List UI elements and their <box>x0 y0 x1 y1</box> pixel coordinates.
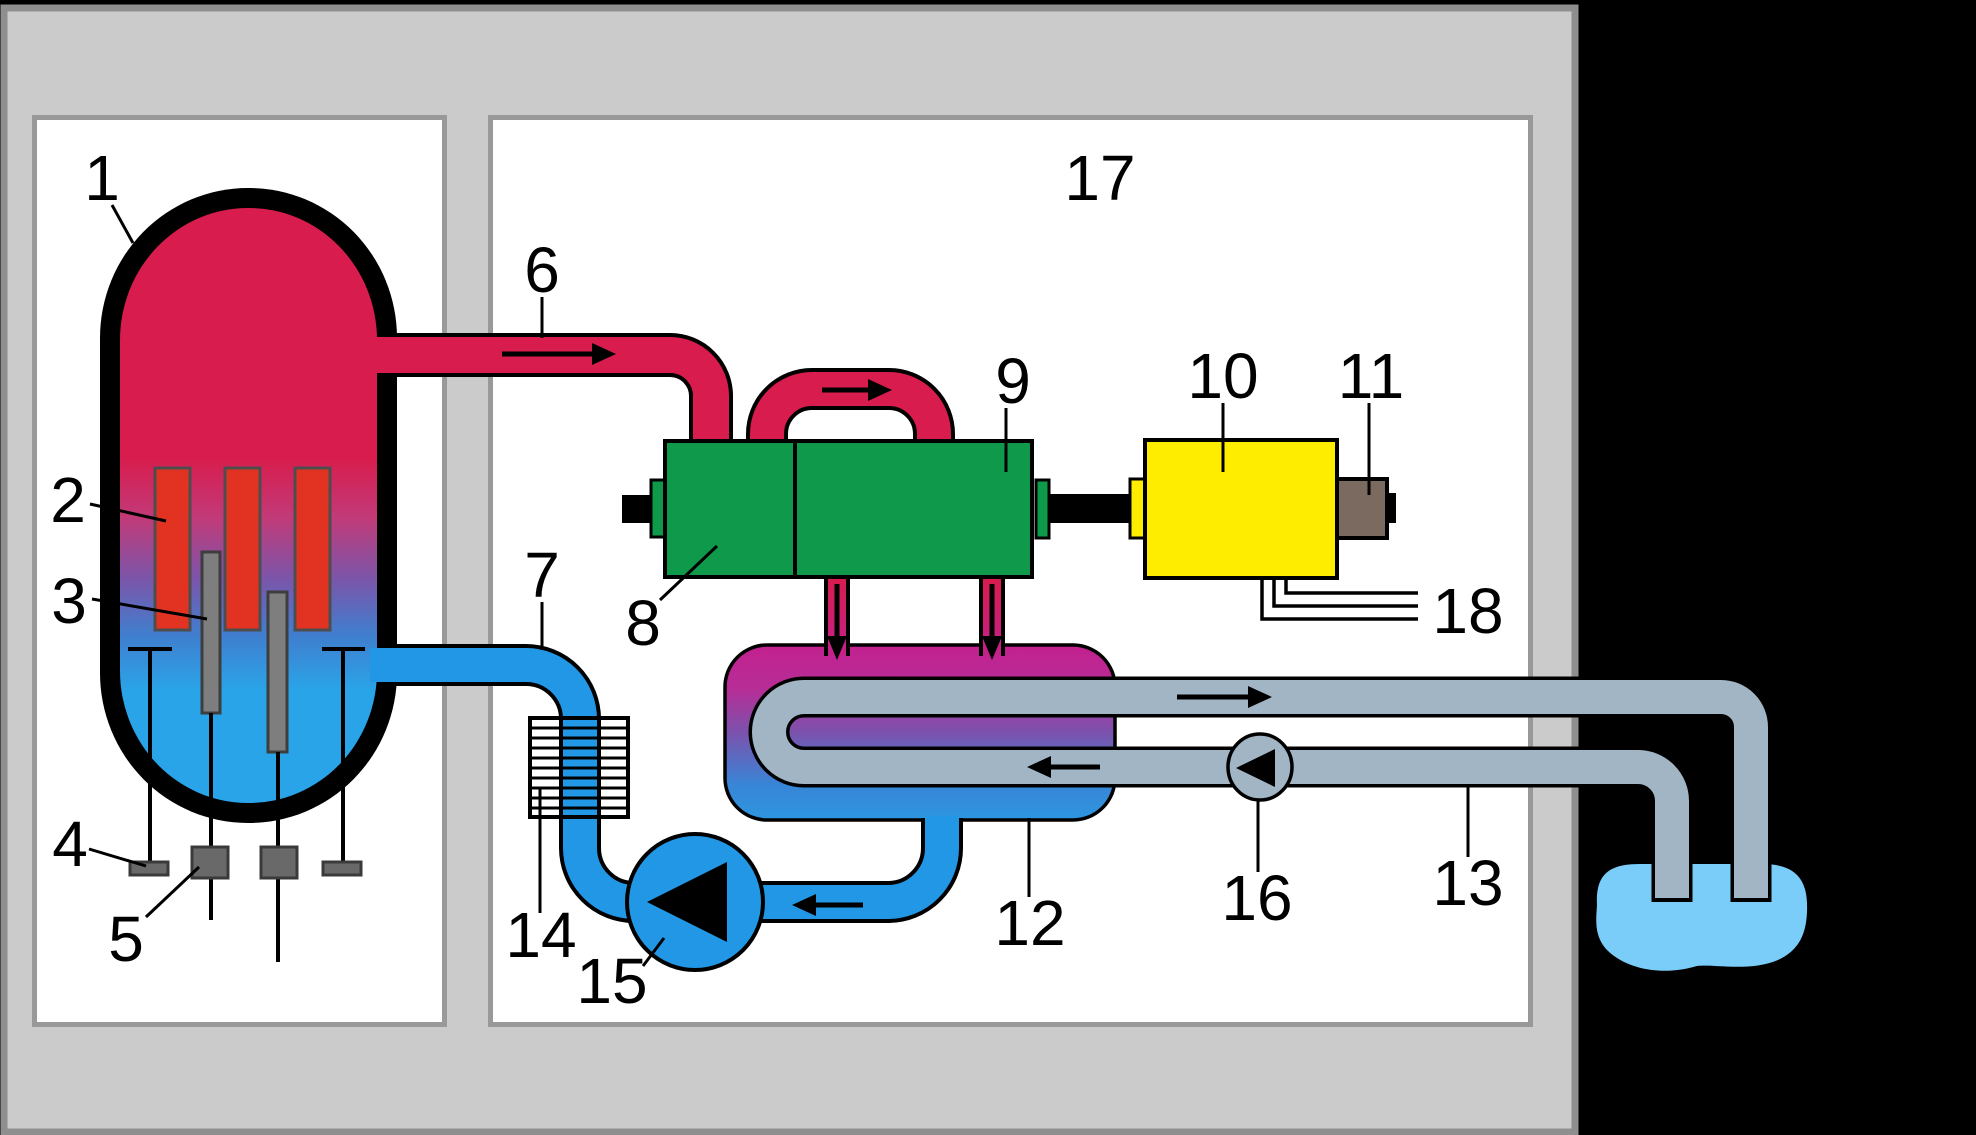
generator <box>1145 440 1337 578</box>
diagram-canvas: 1 2 3 4 5 6 7 8 9 10 11 12 13 14 15 16 1… <box>0 0 1976 1135</box>
label-10: 10 <box>1187 340 1258 412</box>
reactor-schematic: 1 2 3 4 5 6 7 8 9 10 11 12 13 14 15 16 1… <box>0 0 1976 1135</box>
label-16: 16 <box>1221 862 1292 934</box>
turbine-generator-set <box>622 440 1396 578</box>
label-9: 9 <box>995 345 1031 417</box>
label-6: 6 <box>524 234 560 306</box>
turbine-generator-shaft <box>1049 494 1130 523</box>
label-7: 7 <box>524 539 560 611</box>
shaft-stub-right <box>1387 493 1396 523</box>
label-11: 11 <box>1338 340 1404 412</box>
label-8: 8 <box>625 587 661 659</box>
label-2: 2 <box>50 464 86 536</box>
shaft-stub-left <box>622 495 651 523</box>
label-15: 15 <box>576 945 647 1017</box>
label-17: 17 <box>1064 142 1135 214</box>
cooling-water-pump <box>1228 734 1292 800</box>
cooling-water-source <box>1596 864 1807 971</box>
label-4: 4 <box>52 808 88 880</box>
generator-bearing <box>1130 479 1145 538</box>
label-1: 1 <box>84 142 120 214</box>
exciter <box>1337 479 1387 538</box>
label-13: 13 <box>1432 847 1503 919</box>
fuel-rods <box>155 468 330 630</box>
bearing-right <box>1036 480 1049 538</box>
label-18: 18 <box>1432 575 1503 647</box>
label-12: 12 <box>994 887 1065 959</box>
bearing-left <box>651 480 665 537</box>
turbine-block <box>665 441 1032 577</box>
label-5: 5 <box>108 903 144 975</box>
label-3: 3 <box>51 565 87 637</box>
label-14: 14 <box>505 899 576 971</box>
